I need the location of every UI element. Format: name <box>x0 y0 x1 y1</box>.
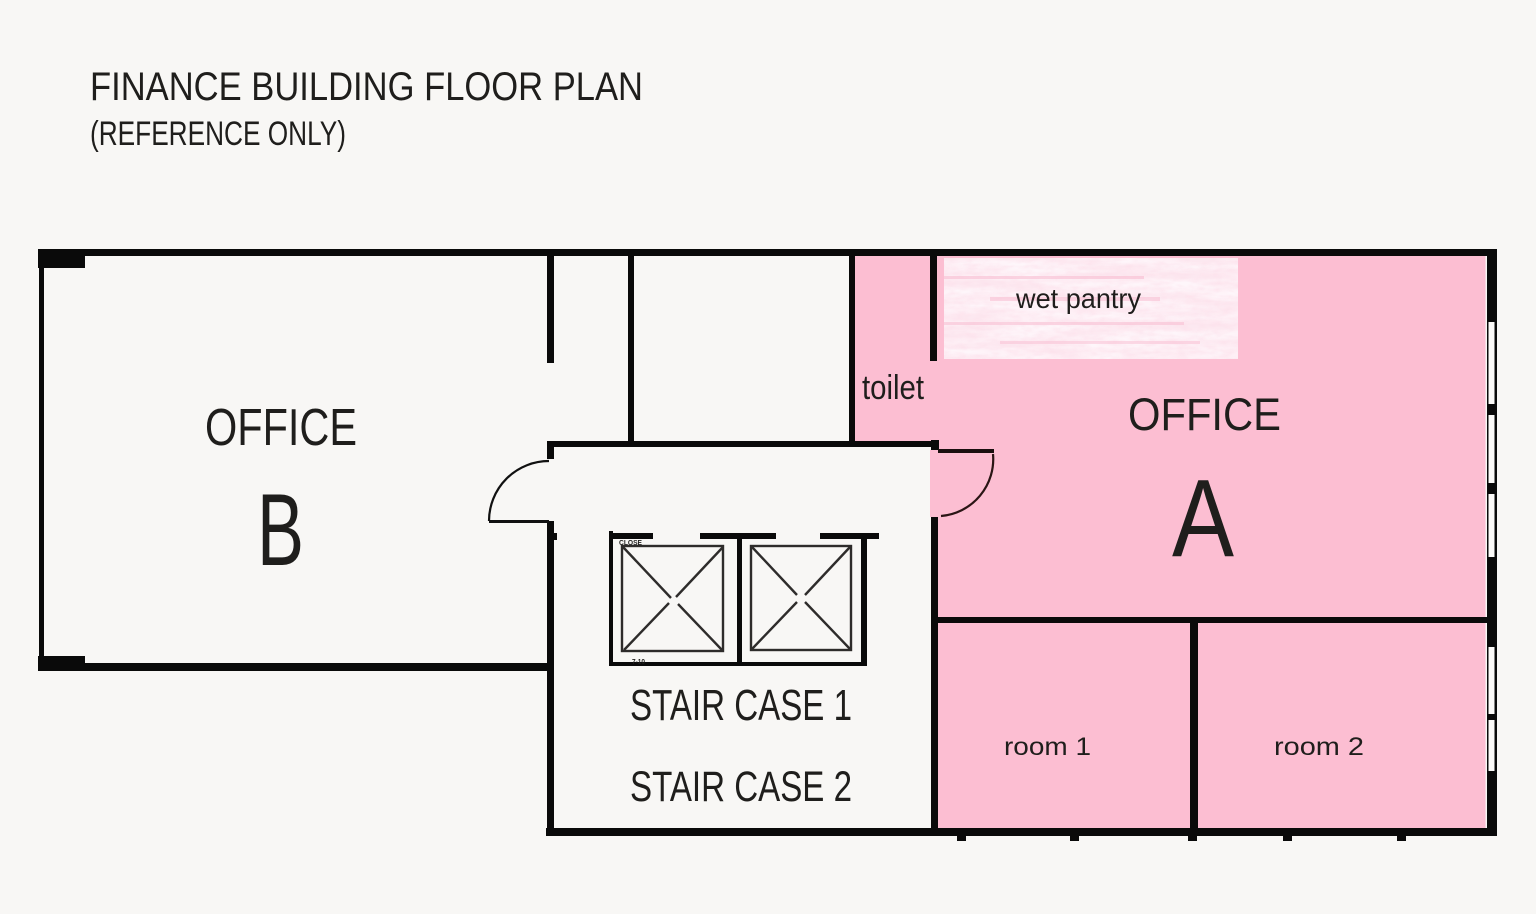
svg-text:STAIR CASE 1: STAIR CASE 1 <box>630 681 852 730</box>
svg-text:room 2: room 2 <box>1274 733 1364 761</box>
svg-text:CLOSE: CLOSE <box>619 540 642 547</box>
svg-text:B: B <box>257 473 304 587</box>
svg-text:FINANCE BUILDING FLOOR PLAN: FINANCE BUILDING FLOOR PLAN <box>90 65 643 109</box>
svg-text:(REFERENCE ONLY): (REFERENCE ONLY) <box>90 115 346 153</box>
svg-text:OFFICE: OFFICE <box>1128 389 1281 440</box>
svg-text:room 1: room 1 <box>1004 733 1091 761</box>
svg-text:toilet: toilet <box>862 369 924 407</box>
svg-text:A: A <box>1172 457 1235 580</box>
svg-text:7-10: 7-10 <box>632 659 645 666</box>
svg-text:wet pantry: wet pantry <box>1015 283 1141 314</box>
svg-text:STAIR CASE 2: STAIR CASE 2 <box>630 763 852 811</box>
svg-text:OFFICE: OFFICE <box>205 399 357 457</box>
